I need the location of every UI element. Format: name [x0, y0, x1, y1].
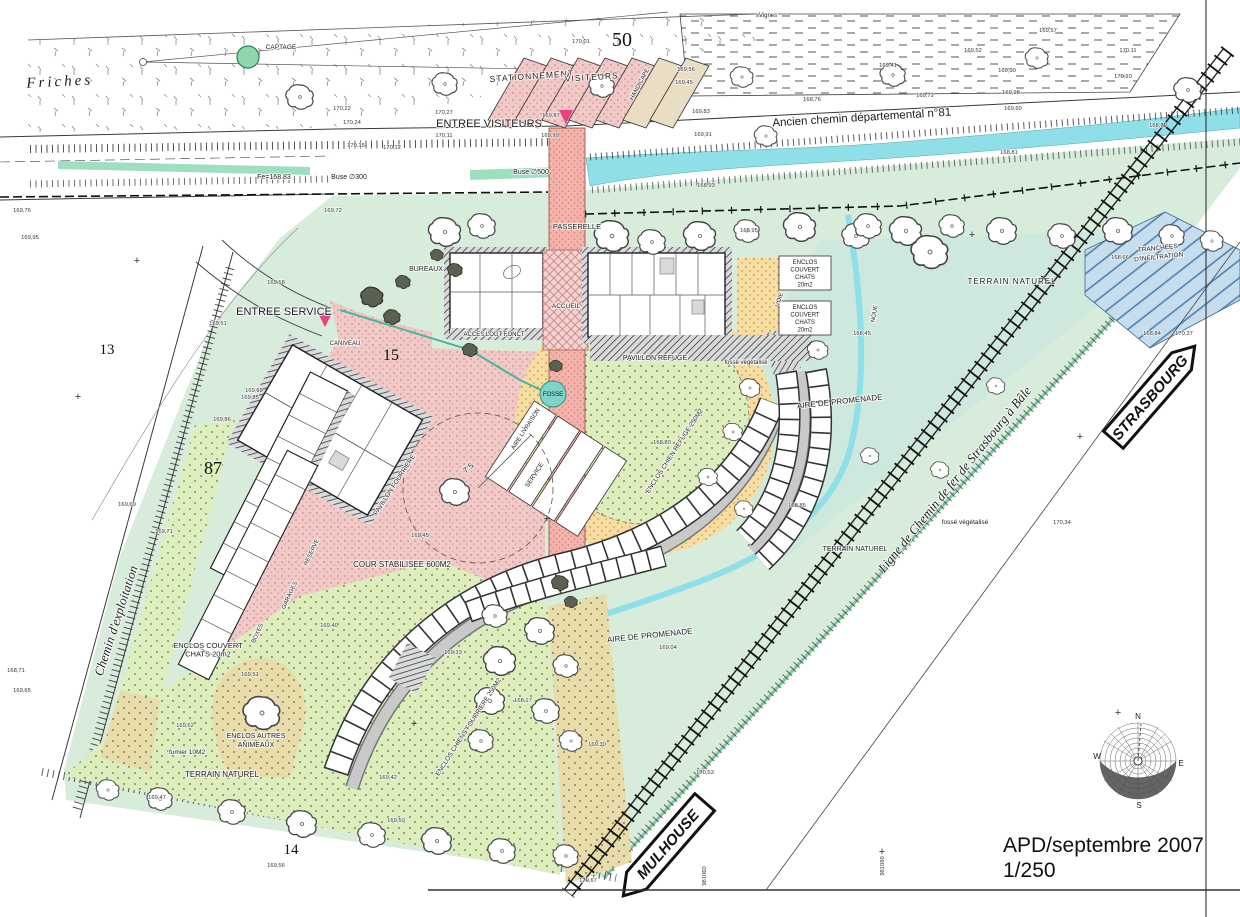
spot-elevation: 170,22	[333, 106, 351, 112]
buse-300-label: Buse ∅300	[331, 174, 367, 181]
survey-cross: +	[879, 846, 885, 858]
spot-elevation: 168,71	[7, 668, 25, 674]
spot-elevation: 170,27	[435, 110, 453, 116]
spot-elevation: 170,10	[1114, 74, 1132, 80]
spot-elevation: 170,53	[696, 770, 714, 776]
bush-icon	[395, 275, 410, 288]
bush-icon	[462, 343, 477, 356]
accueil-link	[543, 250, 588, 350]
spot-elevation: 169,69	[118, 502, 136, 508]
spot-elevation: 169,45	[675, 80, 693, 86]
compass-south-label: S	[1136, 801, 1141, 810]
spot-elevation: 169,57	[1039, 28, 1057, 34]
spot-elevation: 169,60	[1004, 106, 1022, 112]
spot-elevation: 169,04	[659, 645, 678, 651]
spot-elevation: 170,11	[435, 133, 452, 139]
spot-elevation: 169,50	[387, 818, 405, 824]
bureaux-building	[444, 247, 549, 340]
spot-elevation: 169,42	[379, 775, 397, 781]
bush-icon	[564, 596, 577, 608]
bureaux-label: BUREAUX	[409, 266, 443, 273]
fe-invert-label: Fe=168.83	[257, 174, 291, 181]
spot-elevation: 168,80	[653, 440, 671, 446]
spot-elevation: 169,72	[916, 93, 934, 99]
parcel-number: 15	[383, 347, 399, 364]
spot-elevation: 169,91	[694, 132, 712, 138]
spot-elevation: 168,66	[1111, 255, 1129, 261]
spot-elevation: 169,40	[320, 623, 338, 629]
bush-icon	[549, 360, 562, 372]
spot-elevation: 170,01	[572, 39, 590, 45]
spot-elevation: 168,45	[853, 331, 871, 337]
parcel-number: 87	[204, 458, 222, 478]
spot-elevation: 170,24	[343, 120, 362, 126]
fosse-vegetalise-label-2: fossé végétalisé	[942, 519, 989, 526]
grid-coordinate: 981060	[702, 866, 708, 885]
spot-elevation: 169,99	[541, 133, 559, 139]
pavillon-refuge-label: PAVILLON REFUGE	[623, 355, 688, 362]
spot-elevation: 169,33	[444, 650, 462, 656]
bush-icon	[552, 576, 569, 591]
survey-cross: +	[544, 513, 550, 525]
site-plan-svg: STRASBOURG MULHOUSE N W E S 170,22170,24…	[0, 0, 1240, 917]
bush-icon	[447, 263, 462, 276]
spot-elevation: 169,65	[13, 688, 31, 694]
parcel-number: 13	[100, 342, 115, 358]
spot-elevation: 169,98	[1002, 90, 1020, 96]
captage-label: CAPTAGE	[266, 44, 297, 51]
spot-elevation: 169,86	[213, 417, 231, 423]
fumier-label: fumier 10M2	[169, 749, 206, 756]
spot-elevation: 169,58	[267, 280, 285, 286]
fosse-vegetalise-label-1: fossé végétalisé	[724, 360, 768, 366]
spot-elevation: 169,51	[241, 672, 259, 678]
site-plan-page: STRASBOURG MULHOUSE N W E S 170,22170,24…	[0, 0, 1240, 917]
compass-west-label: W	[1093, 752, 1101, 761]
spot-elevation: 169,85	[241, 395, 259, 401]
spot-elevation: 169,71	[155, 529, 173, 535]
spot-elevation: 168,85	[788, 503, 806, 509]
vineyard-area	[680, 14, 1180, 96]
spot-elevation: 169,45	[411, 533, 429, 539]
spot-elevation: 168,93	[697, 183, 715, 189]
spot-elevation: 169,41	[879, 63, 897, 69]
parcel-number: 14	[284, 842, 300, 858]
spot-elevation: 169,51	[209, 321, 227, 327]
spot-elevation: 170,15	[347, 143, 365, 149]
grid-coordinate: 981080	[880, 856, 886, 875]
spot-elevation: 169,30	[588, 742, 606, 748]
survey-cross: +	[411, 718, 417, 730]
terrain-naturel-label-bottom: TERRAIN NATUREL	[185, 770, 260, 779]
spot-elevation: 168,95	[740, 228, 758, 234]
spot-elevation: 169,56	[267, 863, 285, 869]
caniveau-label: CANIVEAU	[330, 341, 361, 347]
spot-elevation: 169,90	[998, 68, 1016, 74]
terrain-naturel-label-mid: TERRAIN NATUREL	[823, 546, 888, 553]
title-block-date: APD/septembre 2007	[1003, 834, 1204, 857]
entree-service-label: ENTREE SERVICE	[236, 306, 332, 318]
spot-elevation: 169,52	[964, 48, 982, 54]
bush-icon	[430, 249, 443, 261]
acces-logt-label: ACCES LOGT FONCT	[464, 332, 525, 338]
spot-elevation: 170,12	[383, 145, 401, 151]
parcel-number: 50	[612, 29, 632, 51]
entree-visiteurs-label: ENTREE VISITEURS	[436, 118, 542, 130]
spot-elevation: 169,62	[176, 723, 194, 729]
compass-north-label: N	[1135, 712, 1141, 721]
captage-circle	[237, 46, 259, 68]
spot-elevation: 170,37	[1175, 331, 1193, 337]
spot-elevation: 169,47	[148, 795, 166, 801]
spot-elevation: 169,83	[692, 109, 710, 115]
survey-cross: +	[75, 391, 81, 403]
spot-elevation: 169,72	[324, 208, 342, 214]
spot-elevation: 168,79	[1149, 123, 1167, 129]
spot-elevation: 169,56	[677, 67, 695, 73]
bush-icon	[384, 310, 401, 325]
spot-elevation: 169,95	[21, 235, 39, 241]
spot-elevation: 169,76	[13, 208, 31, 214]
spot-elevation: 169,87	[542, 113, 560, 119]
buse-500-label: Buse ∅500	[513, 169, 549, 176]
spot-elevation: 170,34	[1053, 520, 1072, 526]
passerelle-label: PASSERELLE	[553, 222, 601, 231]
cour-stabilisee-label: COUR STABILISEE 600M2	[353, 560, 451, 569]
spot-elevation: 170,11	[1119, 48, 1136, 54]
fosse-label: FOSSE	[543, 392, 563, 398]
survey-cross: +	[1115, 707, 1121, 719]
spot-elevation: 168,76	[803, 97, 821, 103]
compass-east-label: E	[1178, 759, 1183, 768]
survey-cross: +	[1077, 431, 1083, 443]
survey-cross: +	[969, 229, 975, 241]
terrain-naturel-label-right: TERRAIN NATUREL	[967, 277, 1056, 286]
vignes-label: Vignes	[759, 13, 777, 19]
spot-elevation: 169,69	[245, 388, 263, 394]
spot-elevation: 168,17	[514, 698, 532, 704]
spot-elevation: 170,67	[579, 878, 597, 884]
spot-elevation: 168,84	[1143, 331, 1162, 337]
spot-elevation: 168,81	[1000, 150, 1018, 156]
accueil-label: ACCUEIL	[552, 303, 581, 310]
title-block-scale: 1/250	[1003, 859, 1056, 882]
survey-cross: +	[134, 255, 140, 267]
